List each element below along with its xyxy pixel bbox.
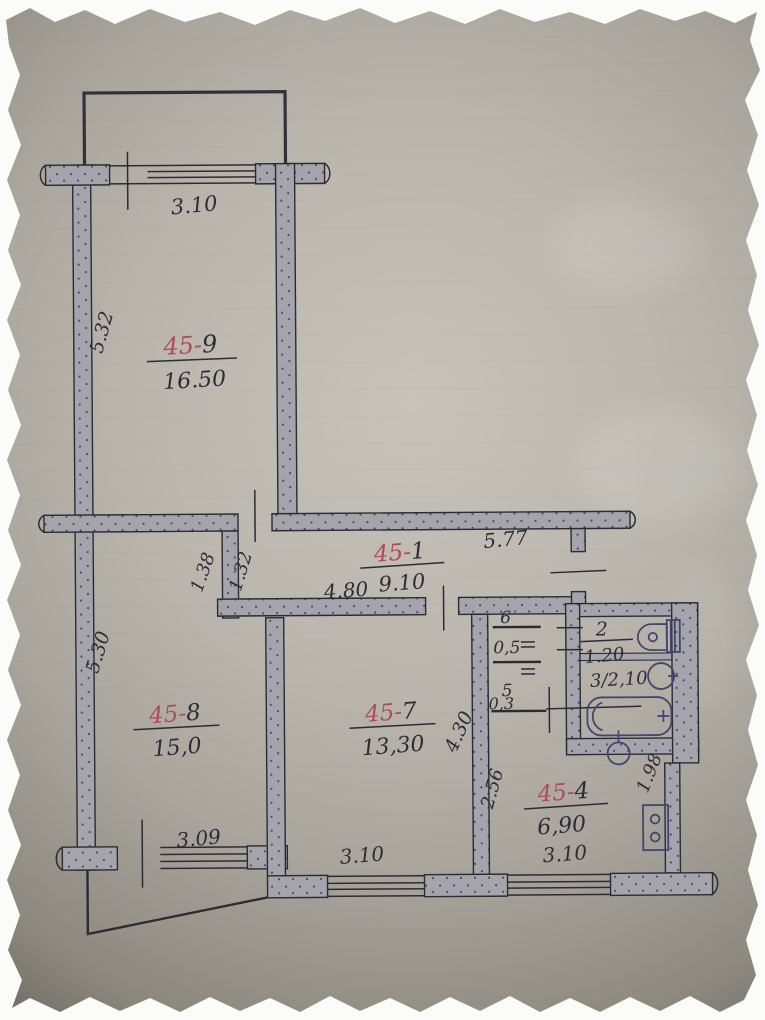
floor-plan-drawing: 45-9 16.50 45-1 9.10 45-8 15,0 45-7 13,3…: [0, 0, 765, 1020]
wall-right-exterior-upper: [672, 603, 699, 763]
room9-area: 16.50: [163, 366, 227, 395]
wall-kitchen-right: [665, 763, 681, 873]
wc-label: 2: [595, 618, 608, 640]
wall-room9-right: [276, 164, 297, 521]
wall-top-segment: [46, 165, 110, 185]
wall-middle-right: [272, 511, 630, 530]
dim-niche-left: 1.38: [187, 550, 220, 595]
paper-background: 45-9 16.50 45-1 9.10 45-8 15,0 45-7 13,3…: [0, 0, 765, 1020]
wall-bottom-segment: [424, 874, 507, 897]
window-room7: [327, 876, 424, 897]
bathtub-icon: [587, 697, 671, 736]
room7-area: 13,30: [361, 732, 426, 762]
kitchen-label: 45-4: [536, 778, 591, 808]
closet6-label: 6: [500, 608, 511, 628]
room8-label: 45-8: [147, 700, 202, 730]
wall-corridor-south-right: [459, 597, 574, 615]
closet6-area: 0,5: [493, 638, 520, 658]
bath-label: 3/2,10: [589, 668, 648, 692]
bottom-balcony-outline: [87, 869, 270, 934]
dim-hall-bottom: 4.80: [322, 577, 370, 604]
wall-middle-left: [44, 514, 238, 532]
room8-area: 15,0: [152, 734, 203, 763]
photo-of-floor-plan: 45-9 16.50 45-1 9.10 45-8 15,0 45-7 13,3…: [0, 0, 765, 1020]
dim-kitchen-right: 1.98: [633, 751, 667, 796]
wc-area: 1.20: [584, 644, 626, 669]
window-kitchen: [507, 874, 610, 895]
hall-area: 9.10: [378, 569, 426, 597]
wall-bottom-segment: [267, 875, 327, 897]
room7-label: 45-7: [363, 698, 418, 728]
wall-room7-kitchen-divider: [472, 614, 490, 874]
dim-hall-top: 5.77: [482, 525, 529, 553]
room9-label: 45-9: [162, 330, 219, 361]
hall-label: 45-1: [372, 538, 427, 568]
kitchen-area: 6,90: [536, 812, 587, 841]
dim-room8-window: 3.09: [175, 824, 222, 852]
wall-bottom-segment: [610, 873, 712, 896]
wall-bath-left: [566, 604, 581, 755]
closet5-area: 0,3: [488, 694, 514, 713]
wall-room8-bottom-left: [62, 847, 117, 870]
dim-room7-window: 3.10: [339, 841, 386, 868]
dim-top-window: 3.10: [170, 191, 219, 219]
dim-kitchen-window: 3.10: [542, 840, 589, 867]
wall-corridor-south-left: [218, 598, 426, 616]
wall-entrance-upper: [571, 529, 585, 552]
wall-room8-room7-divider: [266, 618, 286, 876]
window-room8: [160, 847, 247, 869]
